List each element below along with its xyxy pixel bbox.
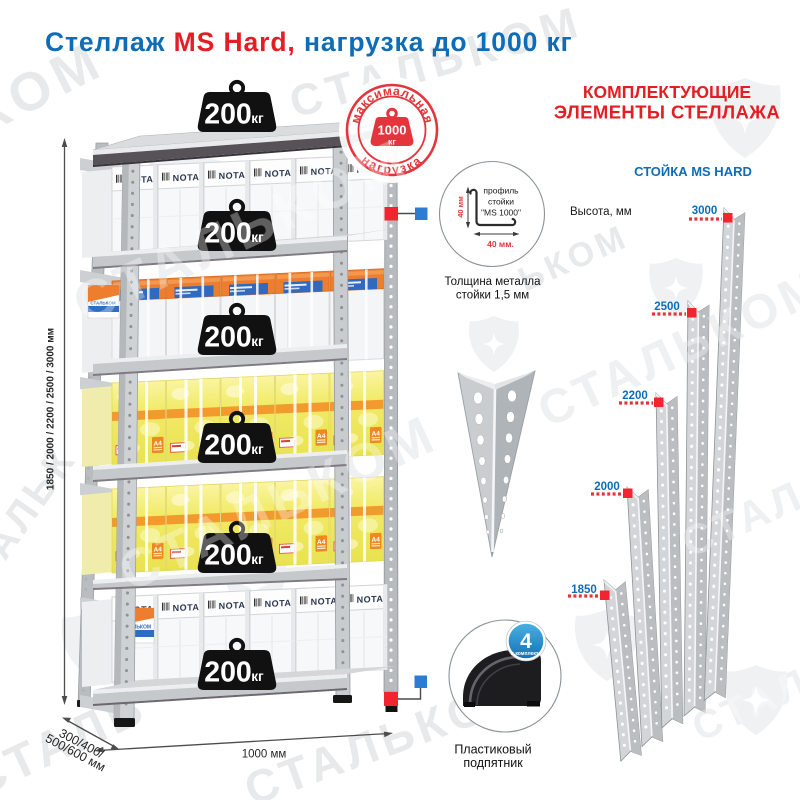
svg-text:ЭЛЕМЕНТЫ СТЕЛЛАЖА: ЭЛЕМЕНТЫ СТЕЛЛАЖА: [554, 102, 780, 123]
svg-text:4: 4: [520, 630, 532, 653]
svg-text:40 мм.: 40 мм.: [487, 239, 514, 249]
svg-text:2500: 2500: [654, 301, 680, 313]
svg-text:3000: 3000: [692, 205, 718, 217]
svg-text:2200: 2200: [622, 390, 648, 402]
svg-text:стойки: стойки: [488, 197, 514, 207]
svg-text:Пластиковый: Пластиковый: [454, 743, 531, 757]
svg-text:"MS 1000": "MS 1000": [481, 208, 521, 218]
svg-text:стойки 1,5 мм: стойки 1,5 мм: [456, 290, 529, 302]
svg-text:1850: 1850: [571, 584, 597, 596]
svg-text:Толщина металла: Толщина металла: [444, 276, 541, 288]
svg-text:1850 / 2000 / 2200 / 2500 / 30: 1850 / 2000 / 2200 / 2500 / 3000 мм: [46, 328, 57, 490]
svg-text:1000 мм: 1000 мм: [242, 749, 287, 761]
svg-text:КОМПЛЕКТУЮЩИЕ: КОМПЛЕКТУЮЩИЕ: [583, 82, 751, 102]
svg-text:СТАЛЬКОМ: СТАЛЬКОМ: [90, 301, 116, 306]
svg-text:Стеллаж MS Hard, нагрузка до 1: Стеллаж MS Hard, нагрузка до 1000 кг: [45, 27, 573, 57]
svg-text:подпятник: подпятник: [463, 756, 523, 770]
svg-text:СТОЙКА MS HARD: СТОЙКА MS HARD: [634, 164, 752, 179]
svg-text:профиль: профиль: [483, 186, 519, 196]
svg-text:Высота, мм: Высота, мм: [570, 206, 632, 218]
svg-text:1000: 1000: [378, 123, 407, 138]
svg-text:кг: кг: [388, 137, 396, 147]
svg-text:40 мм: 40 мм: [456, 196, 465, 218]
svg-text:АЛЬК: АЛЬК: [0, 438, 85, 567]
svg-text:2000: 2000: [594, 481, 620, 493]
svg-text:в комплекте: в комплекте: [511, 651, 541, 657]
